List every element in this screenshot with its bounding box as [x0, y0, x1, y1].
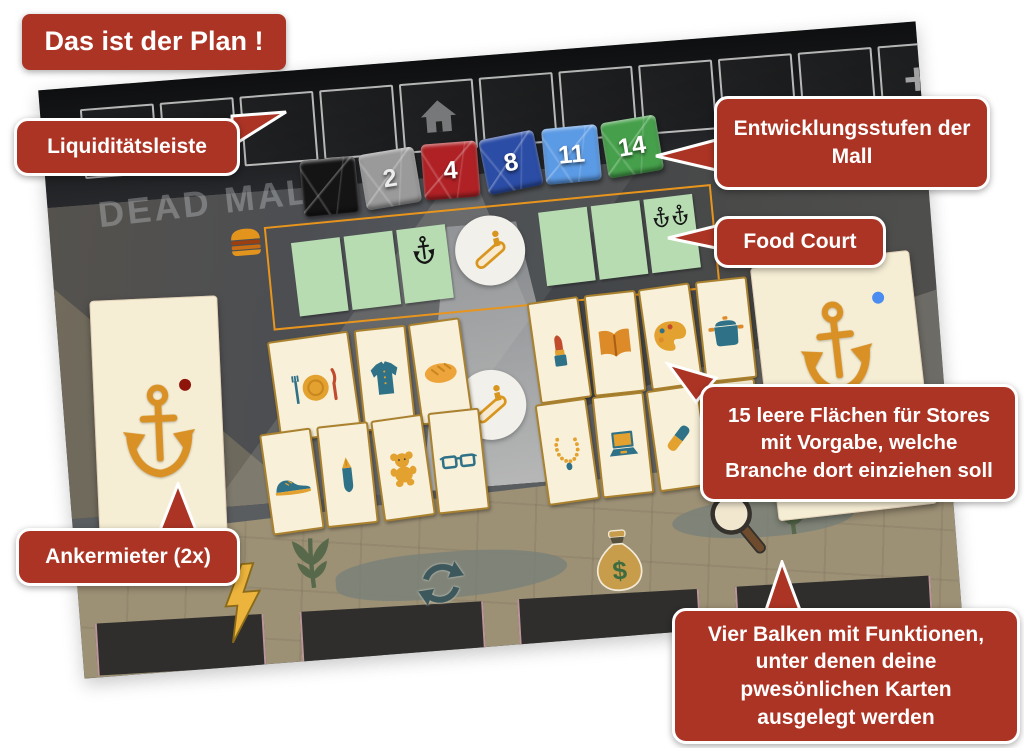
callout-anchor-tenants: Ankermieter (2x) [16, 528, 240, 586]
teddy-bear-icon [379, 444, 426, 491]
store-tile-stationery[interactable] [316, 421, 379, 528]
callout-food-court: Food Court [714, 216, 886, 268]
food-court-cell[interactable] [344, 231, 402, 310]
callout-development-stages: Entwicklungsstufen der Mall [714, 96, 990, 190]
escalator-icon [461, 221, 519, 279]
money-bag-icon [582, 524, 655, 597]
glasses-icon [435, 438, 481, 484]
store-tile-optician[interactable] [427, 408, 490, 515]
blue-dot [871, 291, 884, 304]
food-court-cell[interactable] [291, 237, 349, 316]
tutorial-screenshot: DEAD MALL + 2 4 8 11 14 [0, 0, 1024, 748]
page-title: Das ist der Plan ! [22, 14, 286, 70]
pot-icon [703, 307, 749, 353]
callout-liquidity: Liquiditätsleiste [14, 118, 240, 176]
restaurant-icon [285, 357, 344, 416]
food-court-cell[interactable] [538, 207, 596, 286]
anchor-icon [114, 380, 204, 488]
pill-icon [655, 414, 702, 461]
callout-pointer [156, 482, 200, 532]
book-icon [592, 320, 638, 366]
food-court-cell-anchor[interactable] [396, 224, 454, 303]
store-tile-electronics[interactable] [592, 392, 655, 499]
development-tile-2[interactable]: 2 [358, 146, 422, 210]
home-icon [415, 92, 462, 139]
store-tile-books[interactable] [584, 290, 647, 397]
callout-store-spaces: 15 leere Flächen für Stores mit Vorgabe,… [700, 384, 1018, 502]
laptop-icon [600, 422, 646, 468]
development-tile-8[interactable]: 8 [478, 129, 544, 195]
lipstick-icon [536, 326, 583, 373]
recycle-icon [408, 550, 475, 617]
anchor-icon [409, 234, 439, 269]
development-tile-4[interactable]: 4 [420, 140, 480, 200]
development-tile-black[interactable] [299, 156, 360, 217]
shoe-icon [268, 458, 315, 505]
development-tile-11[interactable]: 11 [541, 124, 602, 185]
callout-pointer [762, 560, 804, 612]
bread-icon [417, 348, 464, 395]
jacket-icon [362, 355, 408, 401]
callout-pointer [664, 222, 720, 252]
liquidity-cell[interactable] [319, 85, 398, 161]
callout-pointer [652, 136, 720, 174]
pen-icon [324, 452, 370, 498]
store-tile-toys[interactable] [370, 414, 436, 522]
food-court-cell[interactable] [591, 200, 649, 279]
callout-function-bars: Vier Balken mit Funktionen, unter denen … [672, 608, 1020, 744]
palette-icon [647, 313, 694, 360]
burger-icon [225, 221, 266, 262]
necklace-icon [544, 428, 591, 475]
